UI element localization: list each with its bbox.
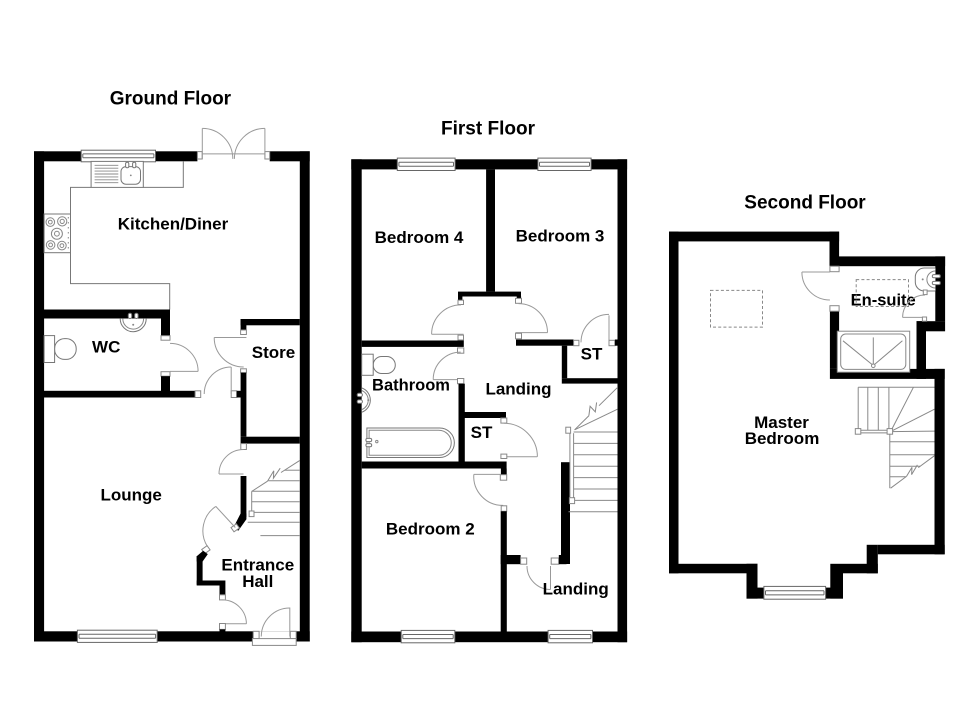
svg-text:Ground Floor: Ground Floor [110,89,232,110]
svg-text:Second Floor: Second Floor [744,193,866,214]
svg-text:Bathroom: Bathroom [372,377,450,395]
svg-text:Kitchen/Diner: Kitchen/Diner [118,215,229,234]
svg-text:Store: Store [252,343,295,362]
svg-text:Hall: Hall [242,572,273,591]
svg-text:Bedroom 3: Bedroom 3 [516,226,605,245]
svg-text:WC: WC [92,337,120,356]
svg-text:Bedroom 2: Bedroom 2 [386,520,475,539]
svg-text:Bedroom 4: Bedroom 4 [375,228,464,247]
svg-text:Lounge: Lounge [101,485,162,504]
svg-text:First Floor: First Floor [441,119,536,140]
svg-text:Bedroom: Bedroom [745,429,820,448]
svg-text:ST: ST [581,345,603,364]
svg-text:ST: ST [471,423,493,442]
svg-text:Landing: Landing [543,580,609,599]
svg-text:Landing: Landing [485,380,551,399]
